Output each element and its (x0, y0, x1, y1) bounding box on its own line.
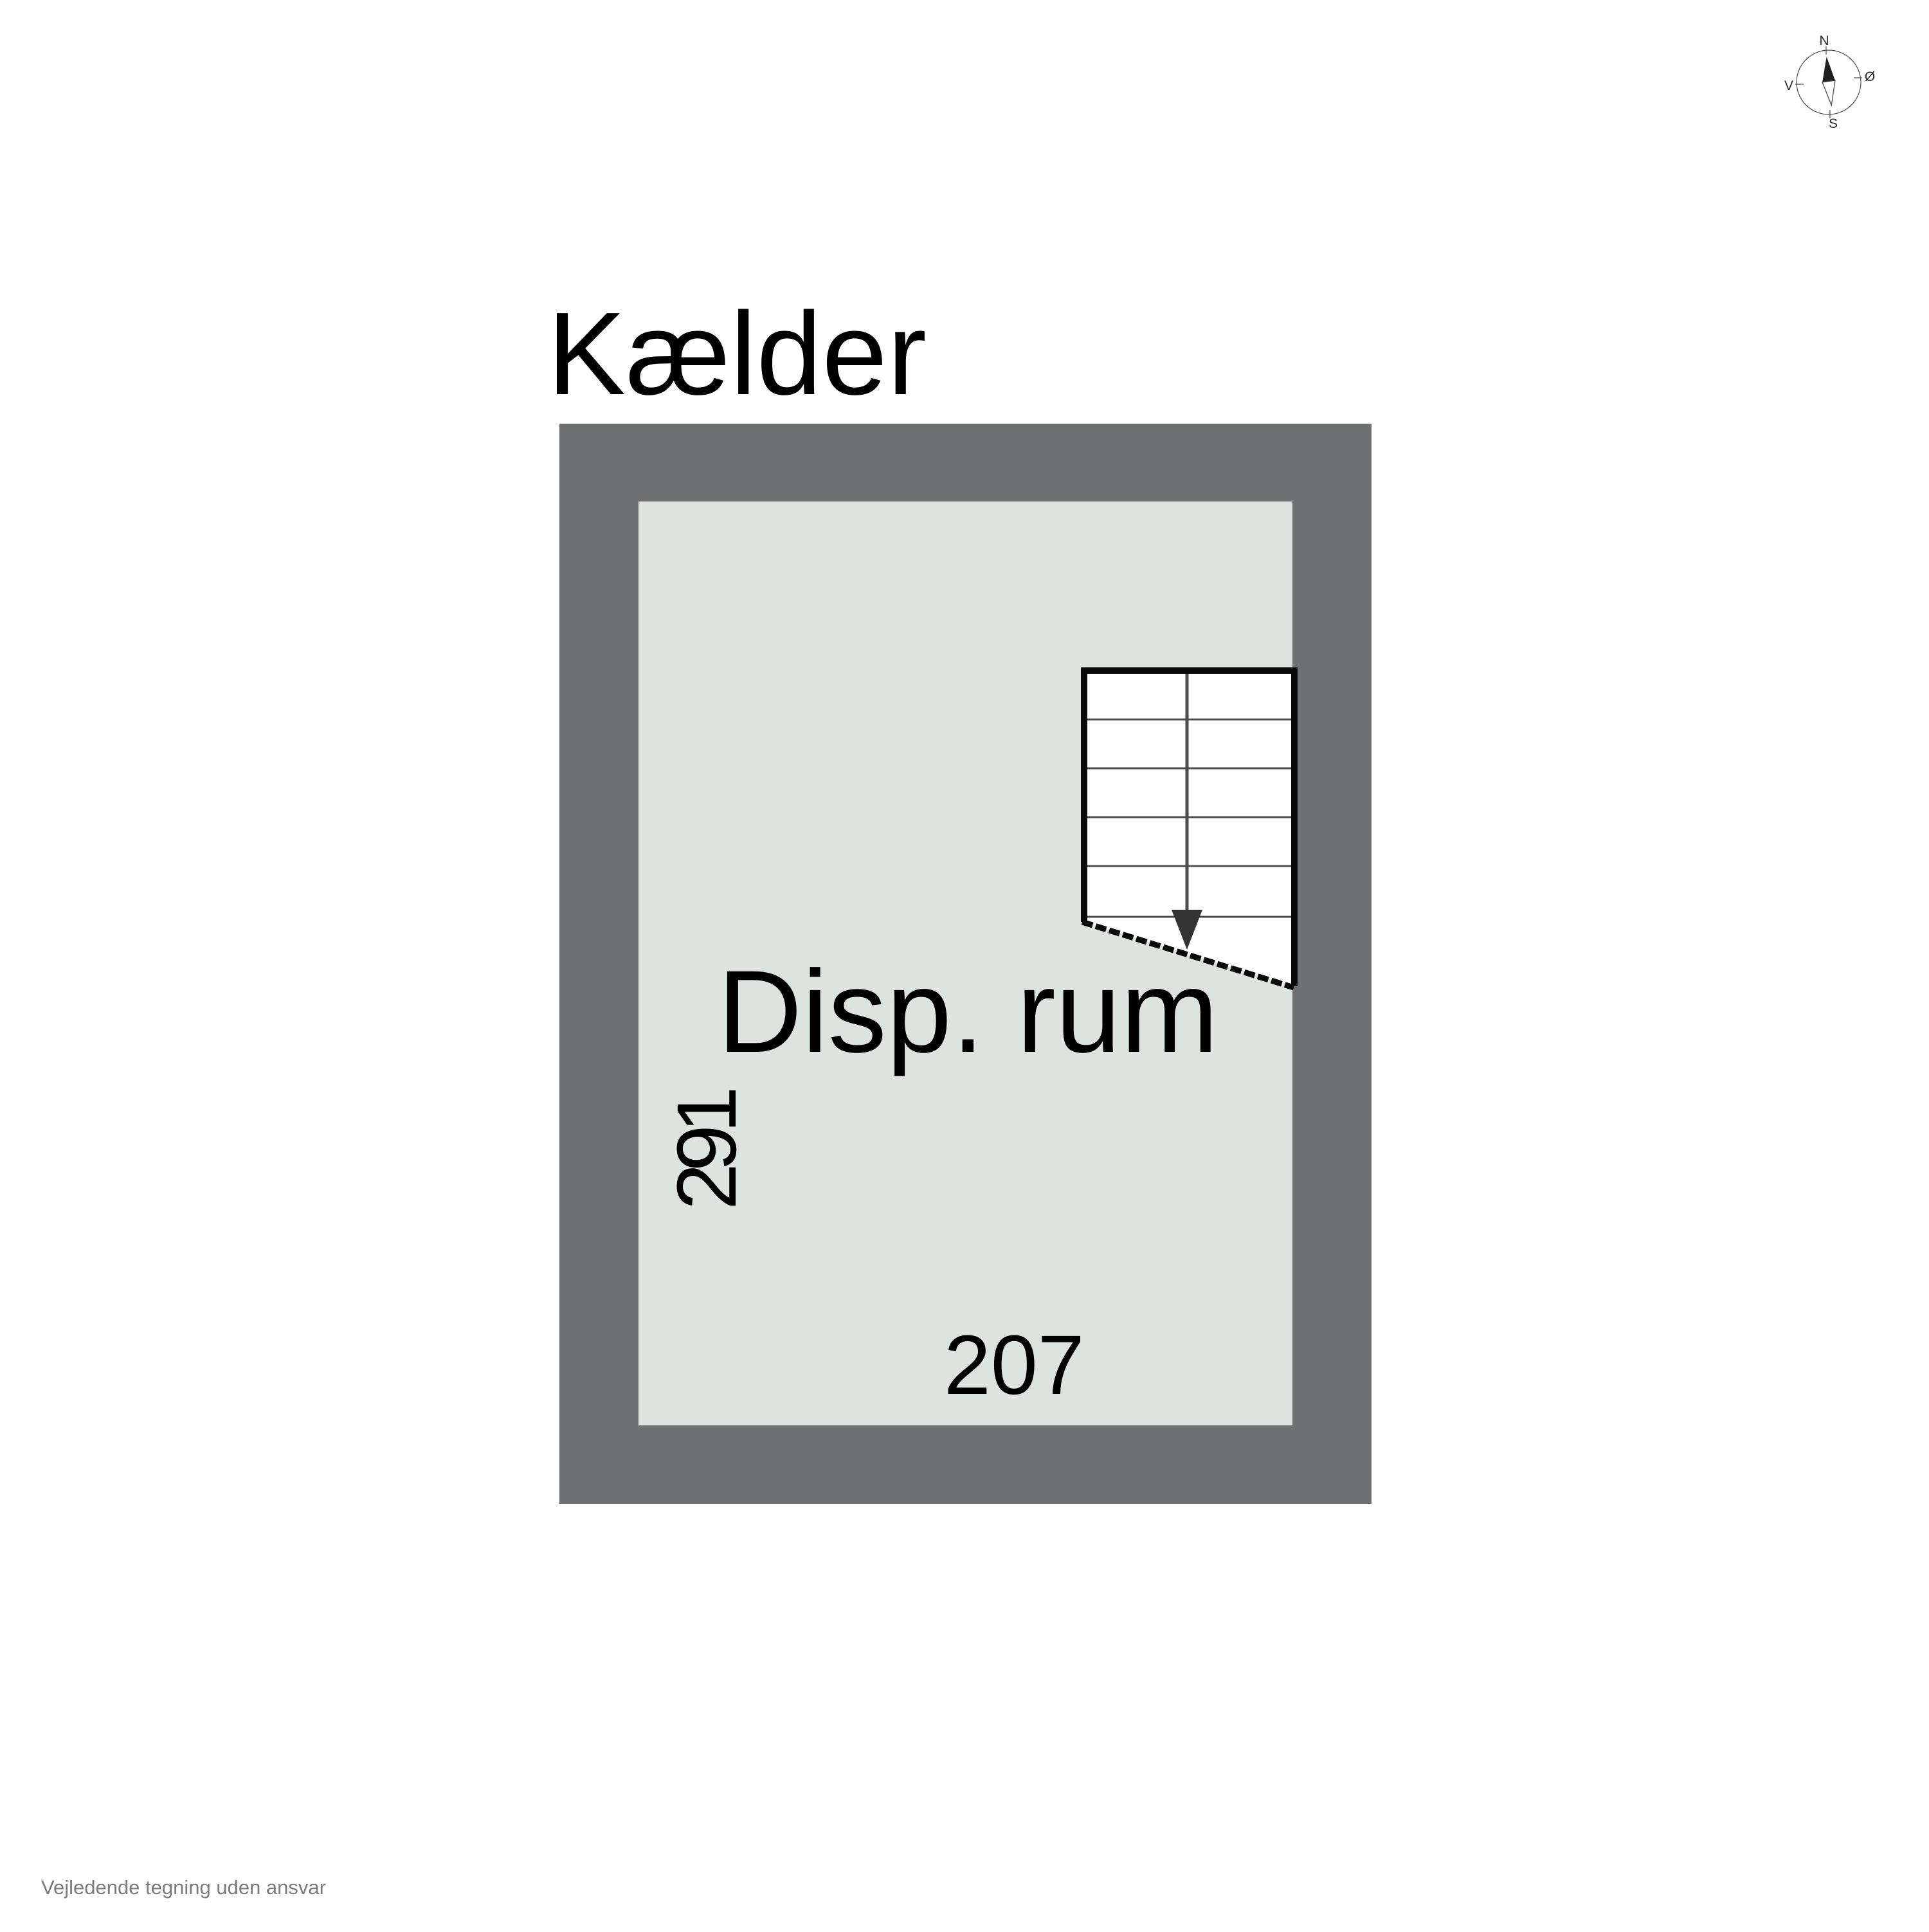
svg-text:Kælder: Kælder (547, 287, 927, 419)
svg-text:207: 207 (944, 1317, 1085, 1412)
svg-text:V: V (1784, 78, 1793, 93)
svg-text:Vejledende tegning uden ansvar: Vejledende tegning uden ansvar (41, 1876, 326, 1899)
svg-text:S: S (1829, 116, 1838, 131)
svg-text:291: 291 (659, 1090, 754, 1210)
svg-text:N: N (1819, 33, 1829, 48)
svg-text:Ø: Ø (1865, 69, 1875, 84)
svg-text:Disp. rum: Disp. rum (718, 946, 1218, 1077)
